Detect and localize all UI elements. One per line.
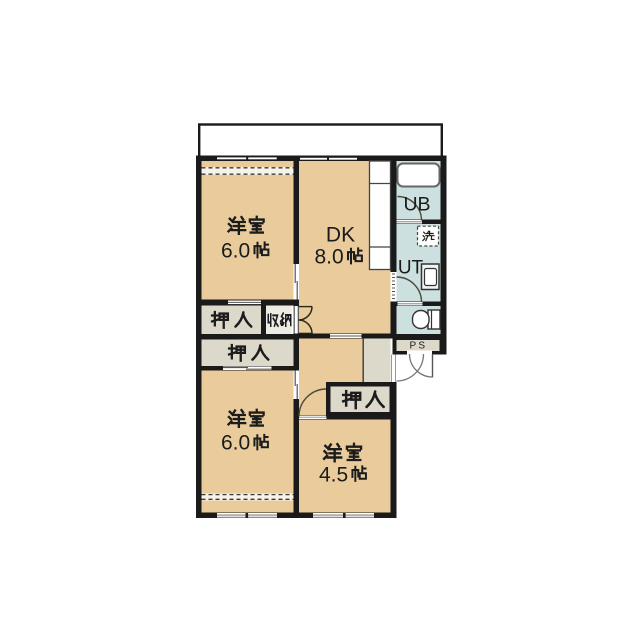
- svg-text:DK: DK: [326, 224, 355, 247]
- svg-text:6.0: 6.0: [221, 240, 250, 263]
- svg-text:4.5: 4.5: [319, 464, 348, 487]
- svg-text:UB: UB: [403, 194, 430, 216]
- svg-text:UT: UT: [398, 258, 424, 279]
- svg-text:PS: PS: [410, 341, 428, 352]
- svg-text:8.0: 8.0: [315, 246, 344, 269]
- svg-text:6.0: 6.0: [221, 432, 250, 455]
